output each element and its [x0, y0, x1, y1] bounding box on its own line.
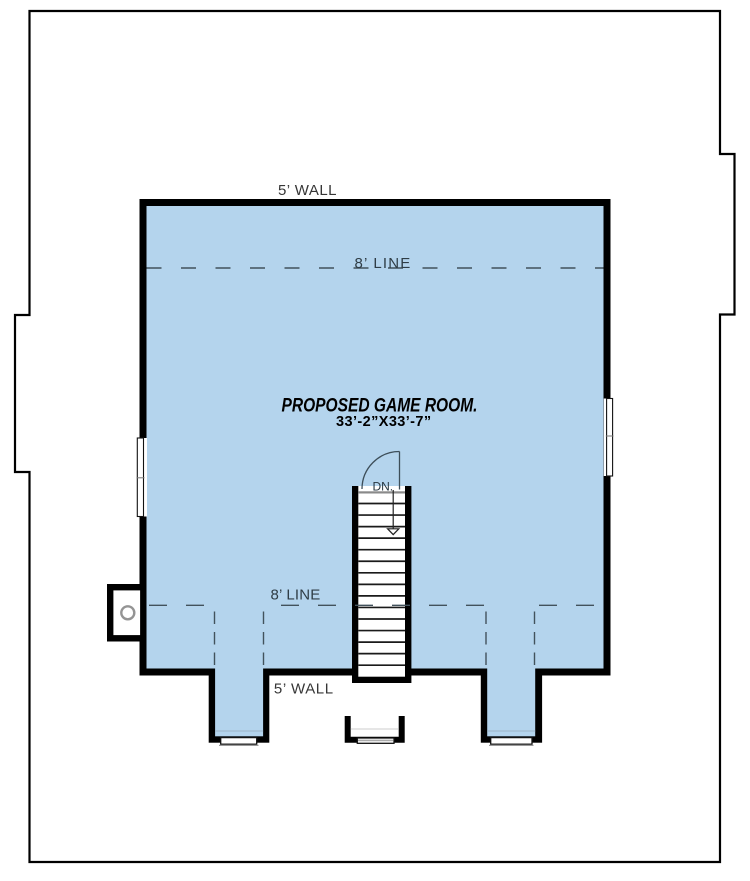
svg-text:33’-2”X33’-7”: 33’-2”X33’-7”: [336, 414, 431, 430]
svg-text:8’ LINE: 8’ LINE: [270, 586, 320, 603]
svg-text:5’ WALL: 5’ WALL: [274, 681, 334, 698]
svg-text:8’ LINE: 8’ LINE: [354, 255, 411, 272]
svg-text:5’ WALL: 5’ WALL: [278, 182, 337, 199]
svg-text:DN.: DN.: [372, 480, 393, 494]
